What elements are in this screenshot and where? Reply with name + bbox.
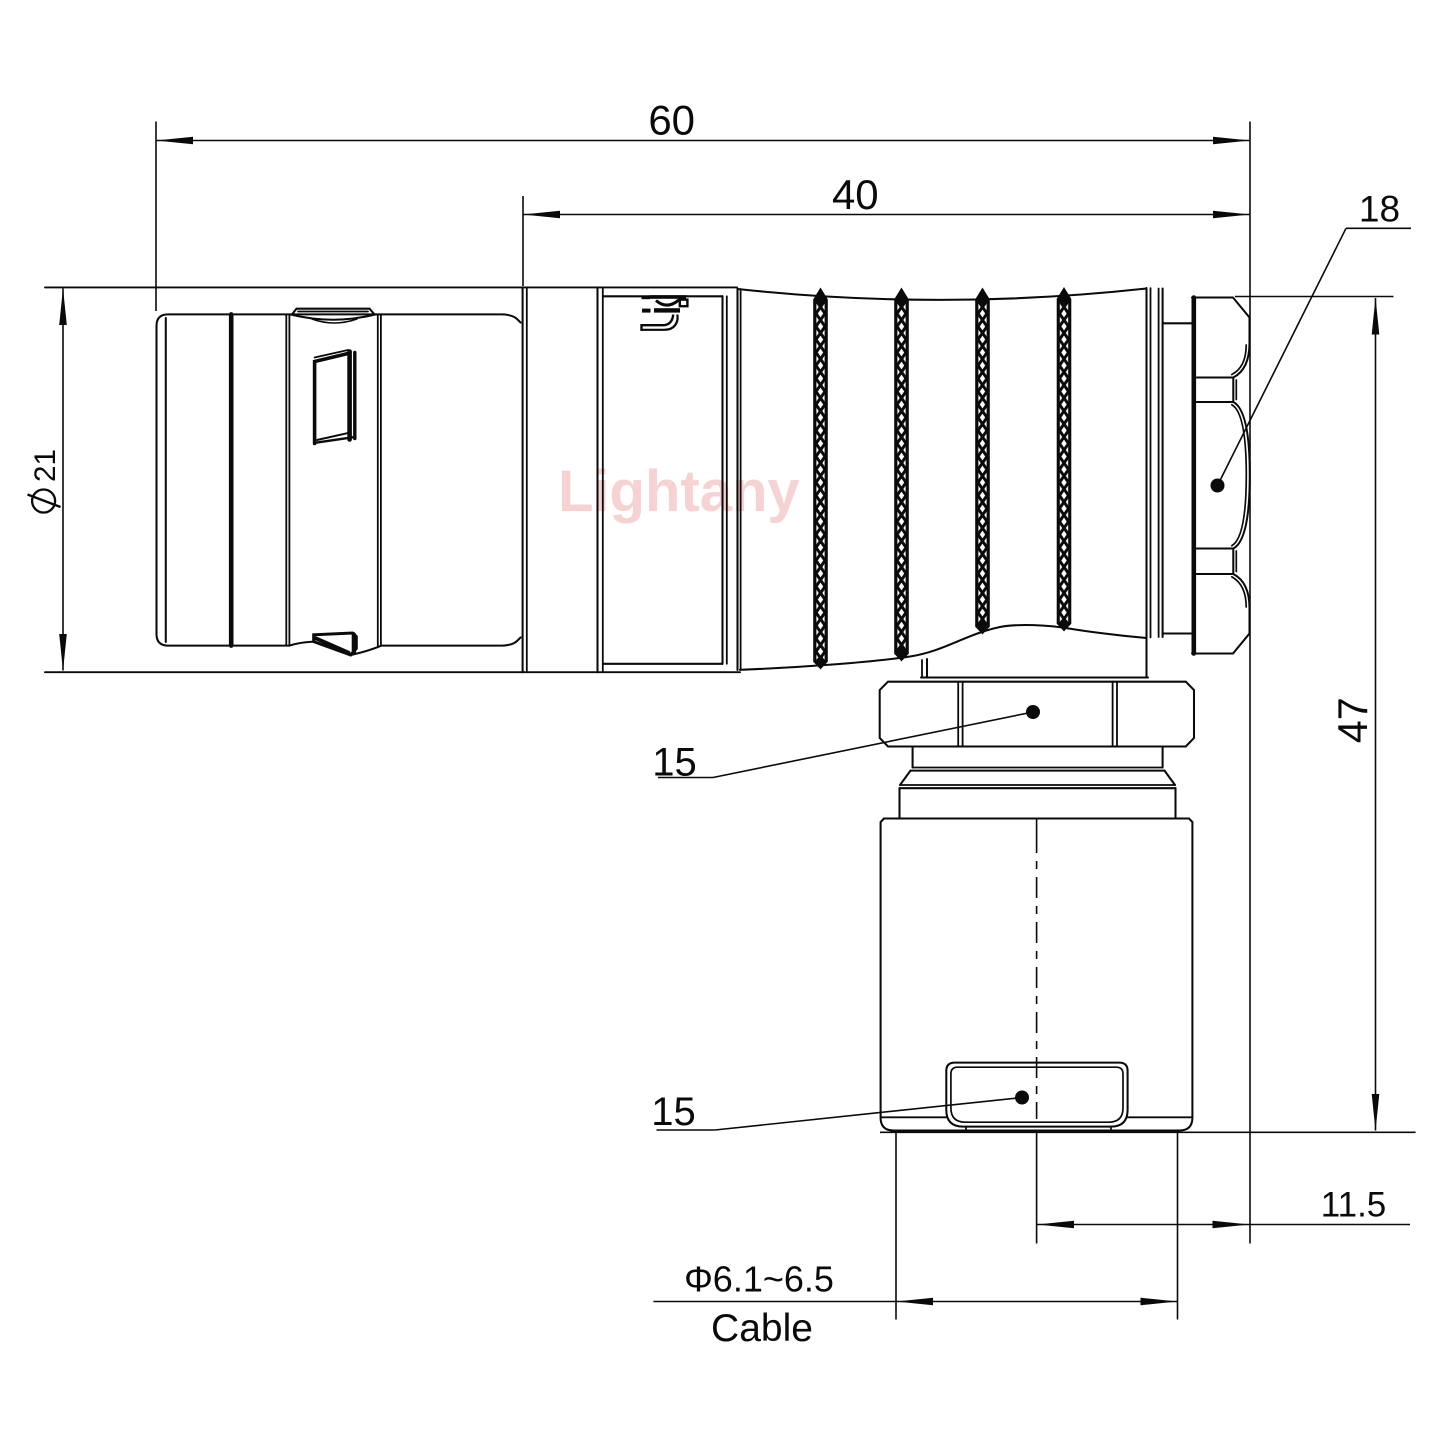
svg-text:40: 40 <box>832 171 879 218</box>
svg-text:Φ6.1~6.5: Φ6.1~6.5 <box>684 1259 834 1300</box>
svg-text:Cable: Cable <box>711 1307 813 1350</box>
svg-text:11.5: 11.5 <box>1321 1186 1387 1225</box>
svg-text:15: 15 <box>651 1090 696 1134</box>
svg-text:21: 21 <box>29 449 62 482</box>
svg-text:60: 60 <box>648 96 695 143</box>
svg-text:18: 18 <box>1359 188 1400 229</box>
svg-text:15: 15 <box>652 740 697 784</box>
svg-text:Lightany: Lightany <box>558 459 800 524</box>
svg-text:47: 47 <box>1329 697 1376 743</box>
